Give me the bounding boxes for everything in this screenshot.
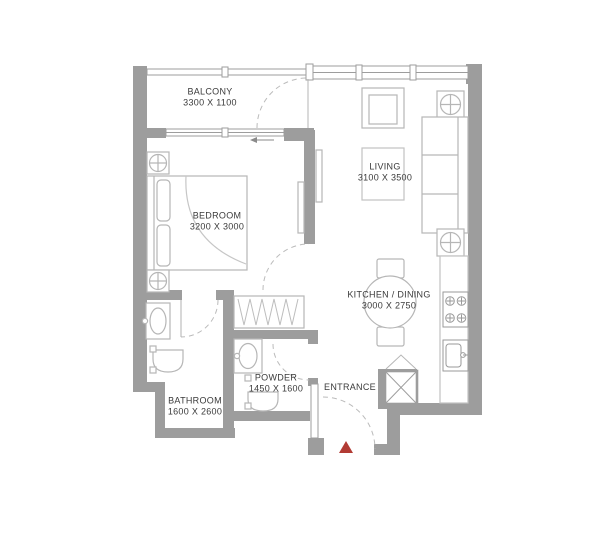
room-name: ENTRANCE (324, 382, 376, 393)
living-window-mullion (306, 64, 313, 80)
side-table-plant (437, 229, 464, 256)
pillow (157, 225, 170, 266)
nightstand-lamp (147, 152, 169, 174)
sofa (422, 117, 468, 233)
wall-powder-top (223, 330, 310, 339)
floor-plan-drawing (0, 0, 600, 537)
room-dims: 1600 X 2600 (168, 406, 222, 417)
powder-sink (234, 339, 262, 373)
slider-post (222, 128, 228, 137)
balcony-door-arc (257, 78, 307, 128)
wall-right (468, 80, 482, 415)
room-label-balcony: BALCONY 3300 X 1100 (183, 87, 237, 108)
room-name: BEDROOM (190, 211, 244, 222)
bedroom-door-arc (263, 244, 309, 290)
room-dims: 3000 X 2750 (347, 300, 430, 311)
room-dims: 3200 X 3000 (190, 221, 244, 232)
armchair (362, 88, 404, 128)
room-dims: 1450 X 1600 (249, 383, 303, 394)
stove (443, 292, 468, 327)
living-window-mullion (410, 65, 416, 80)
wall-left (133, 66, 147, 392)
room-label-kitchen-dining: KITCHEN / DINING 3000 X 2750 (347, 290, 430, 311)
room-label-powder: POWDER 1450 X 1600 (249, 373, 303, 394)
room-label-entrance: ENTRANCE (324, 382, 376, 393)
dining-chair (377, 327, 404, 346)
wall-bedroom-bottom-right (216, 290, 234, 300)
wall-entrance-left-block (308, 438, 324, 455)
room-name: BALCONY (183, 87, 237, 98)
room-label-bedroom: BEDROOM 3200 X 3000 (190, 211, 244, 232)
utility-shaft (385, 355, 417, 404)
entrance-thin-partition (311, 384, 318, 438)
living-side-console (316, 150, 322, 202)
room-dims: 3300 X 1100 (183, 97, 237, 108)
living-window-mullion (356, 65, 362, 80)
entrance-door-arc (323, 397, 375, 449)
entrance-marker (339, 441, 353, 453)
wall-balcony-bottom-left (138, 128, 166, 138)
slider-arrow-icon (250, 137, 274, 143)
wall-powder-bottom (223, 411, 310, 421)
pillow (157, 180, 170, 221)
room-name: POWDER (249, 373, 303, 384)
kitchen-sink (443, 340, 468, 371)
wall-bedroom-living (304, 130, 315, 244)
room-label-living: LIVING 3100 X 3500 (358, 162, 412, 183)
bathroom-door-arc (181, 300, 218, 337)
utility-bifold-door (386, 355, 416, 369)
side-table-plant (437, 91, 464, 118)
room-dims: 3100 X 3500 (358, 172, 412, 183)
bathroom-toilet (150, 346, 183, 373)
dining-chair (377, 259, 404, 278)
kitchen-counter (440, 256, 468, 403)
room-name: BATHROOM (168, 396, 222, 407)
room-label-bathroom: BATHROOM 1600 X 2600 (168, 396, 222, 417)
room-name: KITCHEN / DINING (347, 290, 430, 301)
room-name: LIVING (358, 162, 412, 173)
bathroom-sink (142, 303, 170, 339)
wall-powder-right-top (308, 330, 318, 344)
wall-entrance-bottom-right (374, 444, 400, 455)
nightstand-lamp (147, 270, 169, 292)
bedroom-side-console (298, 182, 304, 233)
wardrobe (234, 296, 304, 328)
floor-plan: BALCONY 3300 X 1100 LIVING 3100 X 3500 B… (0, 0, 600, 537)
balcony-railing-post (222, 67, 228, 77)
